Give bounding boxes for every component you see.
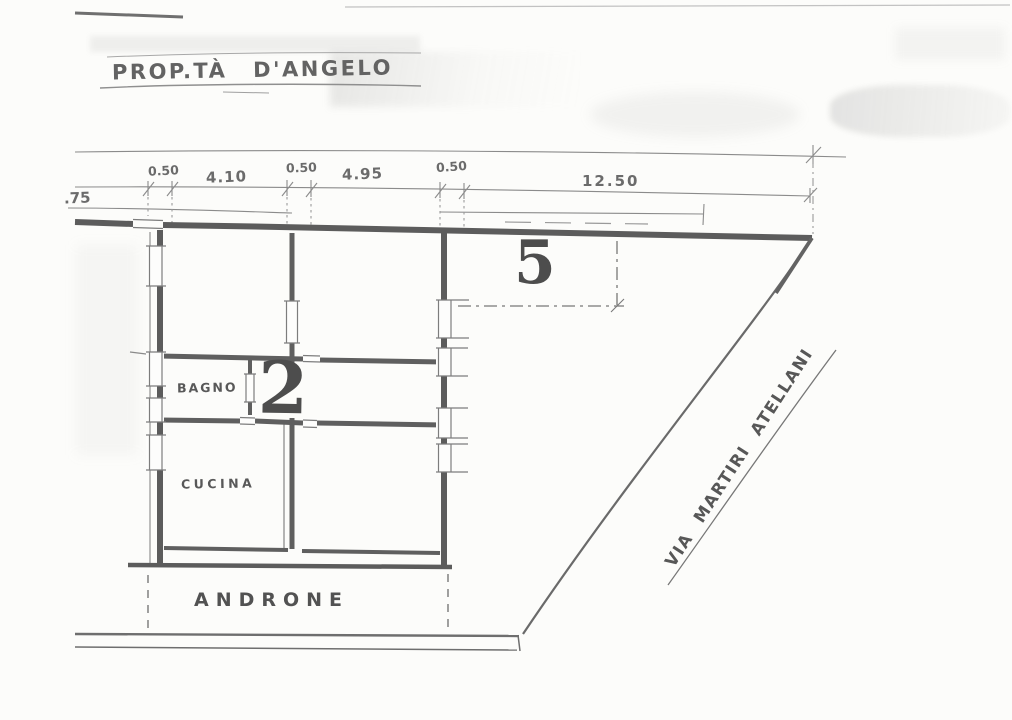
room-label-androne: ANDRONE	[194, 589, 349, 611]
unit-number-5: 5	[514, 233, 556, 293]
room-label-cucina: CUCINA	[181, 475, 256, 491]
window-openings	[133, 216, 469, 472]
dimension-label-wall-a: 0.50	[148, 162, 180, 179]
lot-diagonal-boundary	[523, 238, 836, 634]
dimension-label-left-offset: .75	[64, 189, 91, 208]
dimension-label-wall-b: 0.50	[286, 159, 317, 175]
scanned-floor-plan-page: PROP.TÀ D'ANGELO .75 0.50 4.10 0.50 4.95…	[0, 0, 1012, 720]
room-label-bagno: BAGNO	[177, 379, 238, 395]
dimension-label-span-a: 4.10	[206, 167, 248, 186]
plan-title: PROP.TÀ D'ANGELO	[112, 56, 393, 85]
scan-edge-lines	[75, 5, 1010, 17]
dimension-label-wall-c: 0.50	[436, 158, 468, 175]
dimension-label-span-b: 4.95	[342, 164, 384, 183]
floor-plan-linework	[0, 0, 1012, 720]
dimension-label-street-span: 12.50	[582, 172, 639, 190]
unit-number-2: 2	[257, 352, 308, 425]
street-edge-lines	[75, 634, 520, 651]
